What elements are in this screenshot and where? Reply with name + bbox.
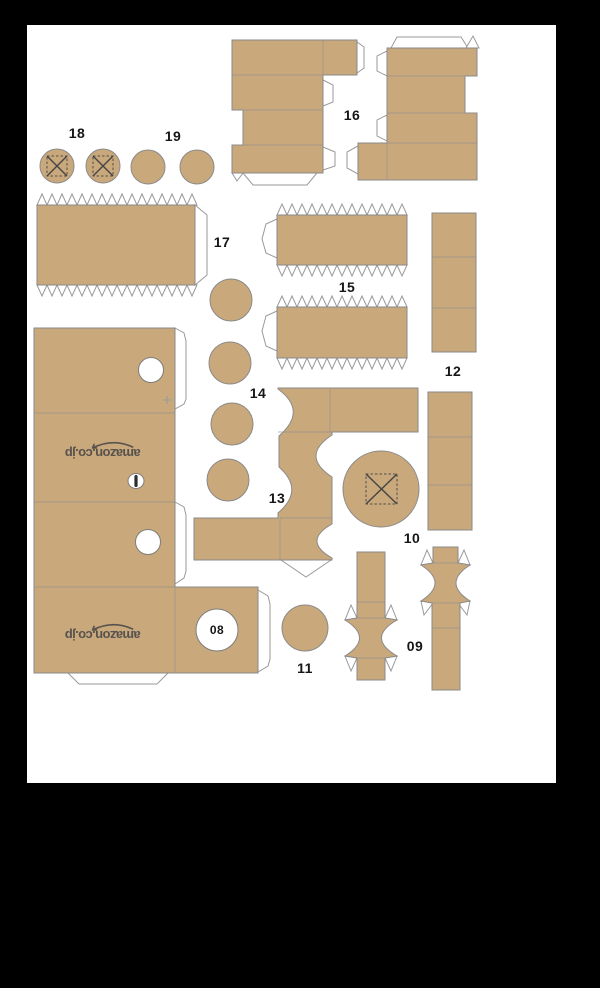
label-16: 16: [344, 107, 361, 123]
piece-17-panel: [37, 194, 207, 296]
template-drawing: [0, 0, 600, 988]
label-15: 15: [339, 279, 356, 295]
label-08: 08: [210, 623, 224, 637]
label-13: 13: [269, 490, 286, 506]
label-17: 17: [214, 234, 231, 250]
papercraft-sheet-scan: 18 19 16 17 15 12 14 13 10 08 11 09 amaz…: [0, 0, 600, 988]
amazon-smile-arc: [89, 440, 135, 449]
piece-10-disc: [343, 451, 419, 527]
label-10: 10: [404, 530, 421, 546]
piece-11-disc: [282, 605, 328, 651]
label-12: 12: [445, 363, 462, 379]
label-14: 14: [250, 385, 267, 401]
label-18: 18: [69, 125, 86, 141]
label-11: 11: [297, 660, 313, 676]
label-19: 19: [165, 128, 182, 144]
amazon-smile-arc: [89, 622, 135, 631]
label-09: 09: [407, 638, 424, 654]
amazon-logo: amazon.co.jp: [65, 622, 140, 642]
amazon-logo: amazon.co.jp: [65, 440, 140, 460]
